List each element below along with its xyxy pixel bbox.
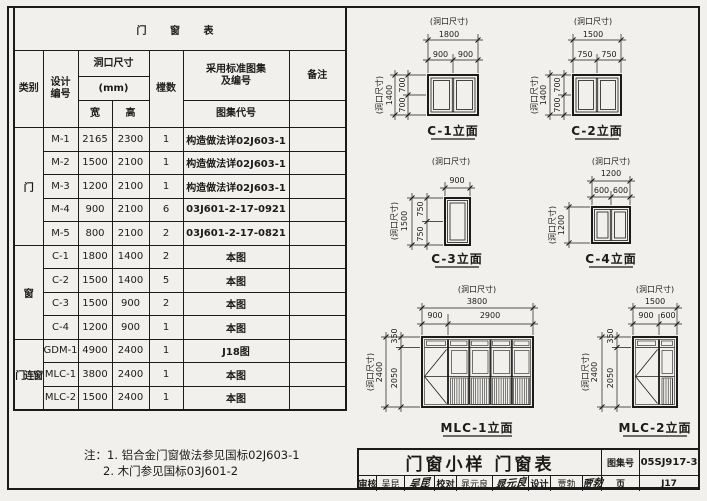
cell-w: 2165 <box>78 128 112 152</box>
cell-count: 5 <box>149 269 183 293</box>
cell-w: 1800 <box>78 245 112 269</box>
c2-window-drawing <box>573 75 621 115</box>
cell-w: 1500 <box>78 151 112 175</box>
header-width: 宽 <box>78 101 112 128</box>
c3-opening-label: (洞口尺寸) <box>432 156 470 166</box>
header-unit: (mm) <box>78 77 149 101</box>
c3-part-height-2: 750 <box>416 226 425 241</box>
reviewer-signature-text: 吴昆 <box>408 475 430 492</box>
cell-w: 800 <box>78 222 112 246</box>
title-block: 门窗小样 门窗表 图集号 05SJ917-3 审核 吴昆 吴昆 校对 晁元良 晁… <box>357 448 700 489</box>
c1-opening-label: (洞口尺寸) <box>430 16 468 26</box>
cell-remark <box>289 128 346 152</box>
header-design-no: 设计 编号 <box>43 51 78 128</box>
cell-count: 1 <box>149 175 183 199</box>
c2-elevation-label: C-2立面 <box>571 123 622 138</box>
mlc1-opening-label: (洞口尺寸) <box>458 284 496 294</box>
mlc1-part-width-2: 2900 <box>480 311 500 320</box>
c4-part-width-1: 600 <box>594 186 609 195</box>
cell-ref: J18图 <box>183 339 289 363</box>
drawing-sheet: 门 窗 表 类别 设计 编号 洞口尺寸 樘数 采用标准图集 及编号 备注 (mm… <box>0 0 707 501</box>
cell-h: 2100 <box>112 175 149 199</box>
reviewer-label: 审核 <box>359 476 377 491</box>
elevation-c3: (洞口尺寸) 900 (洞口尺寸) 1500 750 750 C-3立面 <box>380 150 515 283</box>
reviewer-signature: 吴昆 <box>405 476 435 491</box>
header-height: 高 <box>112 101 149 128</box>
header-remark-sub <box>289 101 346 128</box>
mlc1-total-width: 3800 <box>467 297 487 306</box>
cell-h: 900 <box>112 316 149 340</box>
c1-elevation-label: C-1立面 <box>427 123 478 138</box>
header-opening: 洞口尺寸 <box>78 51 149 77</box>
c2-part-height-1: 700 <box>553 77 562 92</box>
cell-h: 2400 <box>112 363 149 387</box>
cell-no: M-5 <box>43 222 78 246</box>
mlc2-opening-label: (洞口尺寸) <box>636 284 674 294</box>
mlc1-side-opening-label: (洞口尺寸) <box>365 353 375 391</box>
cell-h: 2400 <box>112 339 149 363</box>
c1-part-height-1: 700 <box>398 77 407 92</box>
atlas-number-label: 图集号 <box>602 450 640 475</box>
c2-total-width: 1500 <box>583 30 603 39</box>
mlc2-total-height: 2400 <box>590 362 599 382</box>
cell-remark <box>289 292 346 316</box>
cell-remark <box>289 245 346 269</box>
designer-name: 贾勃 <box>551 476 583 491</box>
page-number: J17 <box>640 476 698 491</box>
c2-part-height-2: 700 <box>553 97 562 112</box>
table-notes: 注：1. 铝合金门窗做法参见国标02J603-1 2. 木门参见国标03J601… <box>84 447 300 479</box>
page-label: 页 <box>602 476 640 491</box>
cell-count: 6 <box>149 198 183 222</box>
c3-elevation-label: C-3立面 <box>431 251 482 266</box>
header-category: 类别 <box>14 51 43 128</box>
note-line-2: 2. 木门参见国标03J601-2 <box>103 463 300 479</box>
table-title: 门 窗 表 <box>14 7 346 51</box>
cell-h: 1400 <box>112 269 149 293</box>
cell-count: 1 <box>149 363 183 387</box>
note-line-1: 注：1. 铝合金门窗做法参见国标02J603-1 <box>84 447 300 463</box>
cell-ref: 构造做法详02J603-1 <box>183 151 289 175</box>
c3-side-opening-label: (洞口尺寸) <box>389 202 399 240</box>
cell-no: M-4 <box>43 198 78 222</box>
mlc1-part-width-1: 900 <box>427 311 442 320</box>
c2-opening-label: (洞口尺寸) <box>574 16 612 26</box>
elevation-c2: (洞口尺寸) 1500 750 750 (洞口尺寸) 1400 700 700 … <box>530 10 682 143</box>
c4-total-height: 1200 <box>557 215 566 235</box>
mlc2-dimensions: (洞口尺寸) 1500 900 600 (洞口尺寸) 2400 350 2050 <box>580 284 682 412</box>
cell-ref: 03J601-2-17-0821 <box>183 222 289 246</box>
checker-signature: 晁元良 <box>493 476 529 491</box>
cell-count: 1 <box>149 128 183 152</box>
elevation-mlc2: (洞口尺寸) 1500 900 600 (洞口尺寸) 2400 350 2050… <box>578 283 707 445</box>
c2-side-opening-label: (洞口尺寸) <box>529 76 539 114</box>
door-window-table: 门 窗 表 类别 设计 编号 洞口尺寸 樘数 采用标准图集 及编号 备注 (mm… <box>13 6 347 411</box>
cell-ref: 本图 <box>183 245 289 269</box>
cell-no: MLC-2 <box>43 386 78 410</box>
cell-w: 3800 <box>78 363 112 387</box>
c3-part-height-1: 750 <box>416 201 425 216</box>
cell-count: 1 <box>149 339 183 363</box>
c1-part-width-1: 900 <box>433 50 448 59</box>
title-block-row1: 门窗小样 门窗表 图集号 05SJ917-3 <box>359 450 698 476</box>
cell-no: C-4 <box>43 316 78 340</box>
header-standard: 采用标准图集 及编号 <box>183 51 289 101</box>
cell-h: 2100 <box>112 222 149 246</box>
cell-count: 2 <box>149 245 183 269</box>
c4-total-width: 1200 <box>601 169 621 178</box>
cell-remark <box>289 339 346 363</box>
c3-total-width: 900 <box>449 176 464 185</box>
cell-remark <box>289 269 346 293</box>
cell-ref: 03J601-2-17-0921 <box>183 198 289 222</box>
cell-remark <box>289 386 346 410</box>
cell-w: 1500 <box>78 292 112 316</box>
c1-part-height-2: 700 <box>398 97 407 112</box>
cell-remark <box>289 175 346 199</box>
cell-ref: 构造做法详02J603-1 <box>183 175 289 199</box>
cell-ref: 本图 <box>183 386 289 410</box>
cell-h: 2100 <box>112 198 149 222</box>
cell-ref: 本图 <box>183 292 289 316</box>
cell-no: M-1 <box>43 128 78 152</box>
cell-count: 1 <box>149 386 183 410</box>
mlc2-side-opening-label: (洞口尺寸) <box>580 353 590 391</box>
c2-total-height: 1400 <box>539 85 548 105</box>
mlc1-elevation-label: MLC-1立面 <box>440 420 513 435</box>
cell-remark <box>289 222 346 246</box>
header-count: 樘数 <box>149 51 183 128</box>
checker-signature-text: 晁元良 <box>494 474 527 493</box>
cell-w: 1200 <box>78 316 112 340</box>
cell-no: GDM-1 <box>43 339 78 363</box>
elevation-mlc1: (洞口尺寸) 3800 900 2900 (洞口尺寸) 2400 350 205… <box>365 283 561 445</box>
mlc1-total-height: 2400 <box>375 362 384 382</box>
cell-w: 900 <box>78 198 112 222</box>
mlc1-part-height-2: 2050 <box>390 368 399 388</box>
cell-h: 2400 <box>112 386 149 410</box>
c4-part-width-2: 600 <box>613 186 628 195</box>
checker-label: 校对 <box>435 476 457 491</box>
cell-count: 2 <box>149 292 183 316</box>
mlc2-part-width-2: 600 <box>660 311 675 320</box>
cell-h: 2300 <box>112 128 149 152</box>
header-atlas-code: 图集代号 <box>183 101 289 128</box>
c1-window-drawing <box>428 75 478 115</box>
cell-w: 1500 <box>78 386 112 410</box>
mlc2-part-height-1: 350 <box>606 328 615 343</box>
c4-side-opening-label: (洞口尺寸) <box>547 206 557 244</box>
cell-count: 1 <box>149 151 183 175</box>
mlc2-part-width-1: 900 <box>638 311 653 320</box>
cell-no: MLC-1 <box>43 363 78 387</box>
sheet-title: 门窗小样 门窗表 <box>359 450 602 475</box>
reviewer-name: 吴昆 <box>377 476 405 491</box>
cell-w: 4900 <box>78 339 112 363</box>
cell-no: M-3 <box>43 175 78 199</box>
category-window: 窗 <box>14 245 43 339</box>
cell-ref: 本图 <box>183 363 289 387</box>
c1-side-opening-label: (洞口尺寸) <box>374 76 384 114</box>
c4-elevation-label: C-4立面 <box>585 251 636 266</box>
elevation-c4: (洞口尺寸) 1200 600 600 (洞口尺寸) 1200 C-4立面 <box>545 150 690 283</box>
cell-no: C-3 <box>43 292 78 316</box>
mlc1-window-drawing <box>422 337 533 407</box>
header-design-line2: 编号 <box>44 89 78 101</box>
c1-part-width-2: 900 <box>458 50 473 59</box>
atlas-number-value: 05SJ917-3 <box>640 450 698 475</box>
c3-total-height: 1500 <box>400 211 409 231</box>
cell-no: M-2 <box>43 151 78 175</box>
header-standard-line1: 采用标准图集 <box>184 64 289 76</box>
cell-no: C-1 <box>43 245 78 269</box>
c2-dimensions: (洞口尺寸) 1500 750 750 (洞口尺寸) 1400 700 700 <box>529 16 626 120</box>
cell-count: 1 <box>149 316 183 340</box>
category-door-window: 门连窗 <box>14 339 43 410</box>
cell-ref: 本图 <box>183 316 289 340</box>
cell-ref: 本图 <box>183 269 289 293</box>
cell-ref: 构造做法详02J603-1 <box>183 128 289 152</box>
c3-window-drawing <box>445 198 470 245</box>
cell-remark <box>289 316 346 340</box>
c2-part-width-1: 750 <box>577 50 592 59</box>
cell-w: 1500 <box>78 269 112 293</box>
c2-part-width-2: 750 <box>601 50 616 59</box>
title-block-row2: 审核 吴昆 吴昆 校对 晁元良 晁元良 设计 贾勃 贾勃 页 J17 <box>359 476 698 491</box>
c1-total-height: 1400 <box>385 85 394 105</box>
mlc2-window-drawing <box>633 337 677 407</box>
category-door: 门 <box>14 128 43 246</box>
elevation-c1: (洞口尺寸) 1800 900 900 (洞口尺寸) 1400 700 700 … <box>365 10 515 143</box>
header-design-line1: 设计 <box>44 77 78 89</box>
mlc2-panel-hatch <box>664 379 673 405</box>
checker-name: 晁元良 <box>457 476 493 491</box>
c4-window-drawing <box>592 207 630 243</box>
c1-total-width: 1800 <box>439 30 459 39</box>
designer-signature-text: 贾勃 <box>581 475 603 492</box>
header-remark: 备注 <box>289 51 346 101</box>
designer-label: 设计 <box>529 476 551 491</box>
cell-h: 2100 <box>112 151 149 175</box>
cell-w: 1200 <box>78 175 112 199</box>
mlc1-part-height-1: 350 <box>390 328 399 343</box>
header-standard-line2: 及编号 <box>184 76 289 88</box>
cell-remark <box>289 151 346 175</box>
cell-count: 2 <box>149 222 183 246</box>
cell-h: 1400 <box>112 245 149 269</box>
mlc2-total-width: 1500 <box>645 297 665 306</box>
mlc2-part-height-2: 2050 <box>606 368 615 388</box>
cell-h: 900 <box>112 292 149 316</box>
cell-no: C-2 <box>43 269 78 293</box>
cell-remark <box>289 198 346 222</box>
c4-opening-label: (洞口尺寸) <box>592 156 630 166</box>
cell-remark <box>289 363 346 387</box>
mlc2-elevation-label: MLC-2立面 <box>618 420 691 435</box>
designer-signature: 贾勃 <box>583 476 602 491</box>
